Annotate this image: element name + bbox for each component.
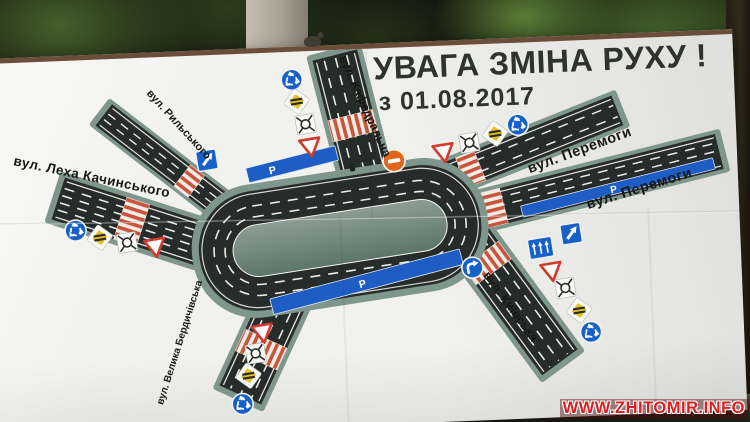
traffic-scheme-diagram: P — [0, 34, 747, 422]
roundabout-sign-icon — [579, 320, 603, 344]
priority-road-sign-icon — [281, 86, 312, 117]
roundabout-sign-icon — [280, 68, 304, 92]
watermark: WWW.ZHITOMIR.INFO — [560, 399, 748, 418]
roundabout-ring — [183, 149, 498, 327]
photo-scene: P — [0, 0, 750, 422]
junction-circle-sign-icon — [554, 277, 576, 299]
junction-circle-sign-icon — [458, 132, 480, 154]
street-label-velyka-berdychivska: вул. Велика Бердичівська — [155, 279, 205, 406]
billboard: P — [0, 29, 747, 422]
junction-circle-sign-icon — [116, 232, 138, 254]
junction-circle-sign-icon — [245, 343, 267, 365]
lane-directions-sign-icon — [527, 236, 554, 260]
one-way-sign-icon — [560, 222, 583, 245]
junction-circle-sign-icon — [295, 113, 317, 135]
